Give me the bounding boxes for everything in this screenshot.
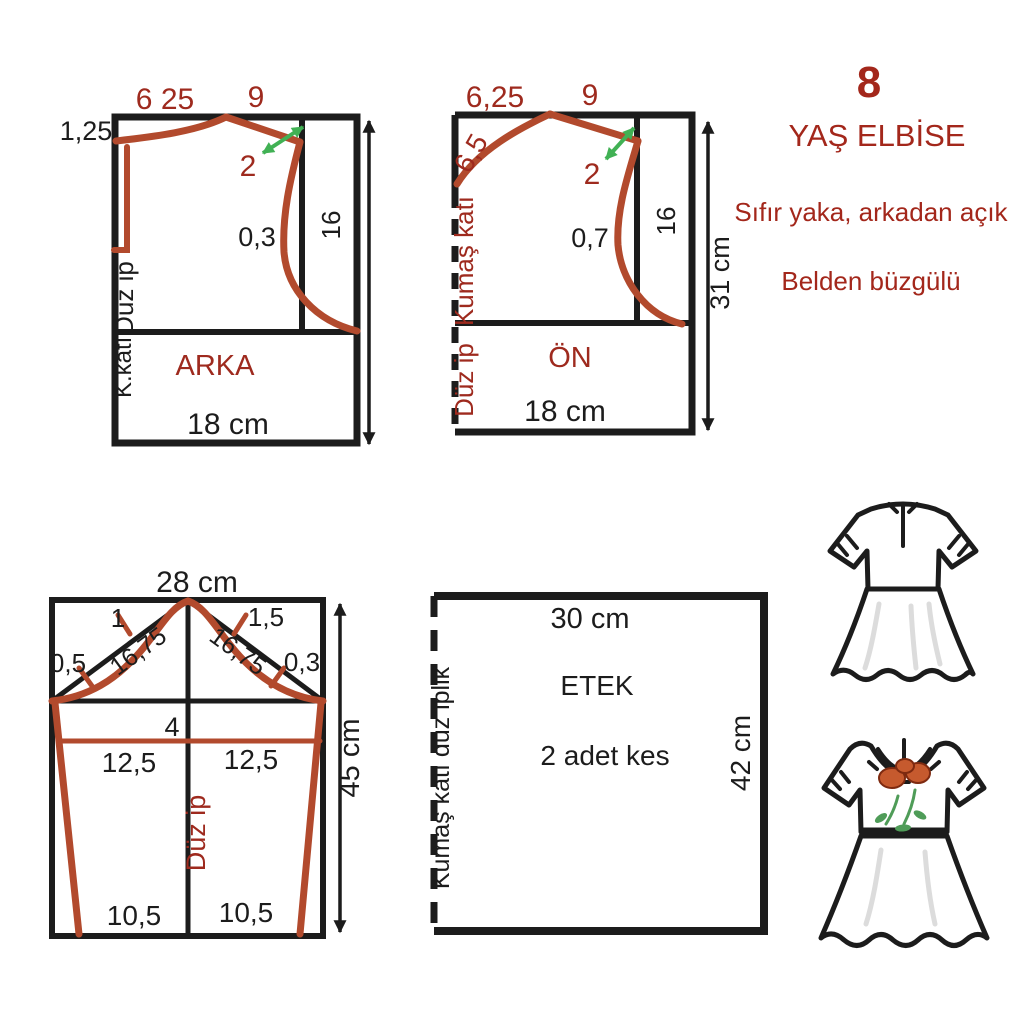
arka-left-measure: 1,25 <box>60 116 113 146</box>
arka-neckline-curve <box>116 117 226 141</box>
size-number: 8 <box>857 58 881 107</box>
on-width-measure: 18 cm <box>524 395 606 428</box>
front-dress-skirt <box>821 836 987 946</box>
on-height-measure: 31 cm <box>705 236 735 310</box>
etek-width-measure: 30 cm <box>551 603 630 635</box>
sewing-pattern-sheet: 6 25 9 1,25 2 0,3 16 Düz ip K.katı. ARKA… <box>0 0 1024 1024</box>
back-bodice-piece: 6 25 9 1,25 2 0,3 16 Düz ip K.katı. ARKA… <box>60 81 369 444</box>
arka-notch-measure: 2 <box>240 150 257 183</box>
on-side-measure: 16 <box>651 207 681 236</box>
subtitle-collar: Sıfır yaka, arkadan açık <box>734 197 1008 227</box>
arka-armhole-measure: 0,3 <box>238 222 276 252</box>
sleeve-hem-left-measure: 10,5 <box>107 900 162 931</box>
arka-width-measure: 18 cm <box>187 408 269 441</box>
sleeve-edge-left-measure: 0,5 <box>50 648 86 678</box>
on-top-left-measure: 6,25 <box>466 81 524 114</box>
etek-fold-label: Kumaş katı düz iplik <box>427 666 455 889</box>
sleeve-bicep-measure: 4 <box>164 712 179 742</box>
sleeve-cap-left-measure: 1 <box>111 603 125 633</box>
page-title: YAŞ ELBİSE <box>789 118 966 153</box>
arka-side-measure: 16 <box>316 211 346 240</box>
on-piece-name: ÖN <box>548 342 592 374</box>
on-armhole-measure: 0,7 <box>571 223 609 253</box>
subtitle-waist: Belden büzgülü <box>781 266 960 296</box>
arka-piece-name: ARKA <box>176 350 256 382</box>
skirt-piece: 30 cm ETEK 2 adet kes 42 cm Kumaş katı d… <box>427 596 764 931</box>
arka-top-right-measure: 9 <box>248 81 265 114</box>
sleeve-mid-right-measure: 12,5 <box>224 744 279 775</box>
etek-cut-note: 2 adet kes <box>540 740 669 771</box>
etek-height-measure: 42 cm <box>725 715 756 791</box>
sleeve-cap-right-measure: 1,5 <box>248 602 284 632</box>
sleeve-cap-tick-3 <box>234 615 246 634</box>
on-notch-measure: 2 <box>584 158 601 191</box>
sleeve-right-seam <box>300 703 321 934</box>
front-bodice-piece: 6,25 9 6,5 2 0,7 16 31 cm Kumaş katı Düz… <box>448 79 735 432</box>
sleeve-height-measure: 45 cm <box>334 719 366 798</box>
sleeve-mid-left-measure: 12,5 <box>102 747 157 778</box>
dress-front-view-illustration <box>821 740 987 946</box>
back-dress-skirt <box>833 589 973 680</box>
sleeve-piece: 28 cm 1 1,5 0,5 0,3 16,75 16,75 4 12,5 1… <box>50 566 366 936</box>
on-grainline-label: Düz ip <box>449 343 479 417</box>
sleeve-grainline-label: Düz ip <box>181 795 211 872</box>
flower-bloom <box>896 759 914 773</box>
sleeve-width-measure: 28 cm <box>156 566 238 599</box>
arka-fold-label: K.katı. <box>110 330 137 398</box>
on-outline <box>455 115 692 432</box>
header-block: 8 YAŞ ELBİSE Sıfır yaka, arkadan açık Be… <box>734 58 1008 296</box>
sleeve-hem-right-measure: 10,5 <box>219 897 274 928</box>
dress-back-view-illustration <box>830 504 976 680</box>
etek-piece-name: ETEK <box>560 670 633 701</box>
on-fold-label: Kumaş katı <box>449 196 479 326</box>
arka-outline <box>115 117 357 443</box>
on-top-right-measure: 9 <box>582 79 599 112</box>
arka-top-left-measure: 6 25 <box>136 83 194 116</box>
sleeve-edge-right-measure: 0,3 <box>284 647 320 677</box>
arka-grainline-label: Düz ip <box>109 261 139 335</box>
sleeve-left-seam <box>55 703 79 934</box>
